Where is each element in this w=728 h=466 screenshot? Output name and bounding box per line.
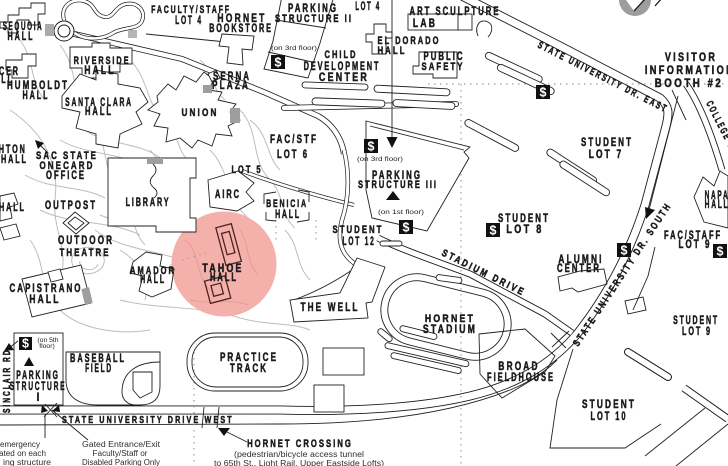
svg-text:LOT 4: LOT 4: [355, 0, 381, 12]
svg-text:BOOTH #2: BOOTH #2: [655, 77, 723, 90]
svg-text:(pedestrian/bicycle access tun: (pedestrian/bicycle access tunnel: [234, 450, 364, 459]
svg-text:AIRC: AIRC: [215, 188, 241, 201]
svg-text:$: $: [403, 221, 410, 235]
svg-text:FIELDHOUSE: FIELDHOUSE: [487, 372, 555, 385]
svg-text:STRUCTURE II: STRUCTURE II: [275, 13, 353, 26]
svg-text:HALL: HALL: [377, 45, 406, 58]
svg-text:STUDENT: STUDENT: [581, 137, 633, 150]
svg-text:$: $: [717, 245, 724, 259]
svg-text:LOT 5: LOT 5: [232, 164, 263, 177]
svg-text:LOT 12: LOT 12: [342, 234, 375, 247]
svg-text:HORNET CROSSING: HORNET CROSSING: [247, 438, 353, 451]
svg-text:$: $: [368, 140, 375, 154]
svg-text:$: $: [540, 86, 547, 100]
svg-text:TRACK: TRACK: [230, 363, 268, 376]
svg-text:INFORMATION: INFORMATION: [645, 65, 728, 77]
svg-text:STADIUM: STADIUM: [423, 324, 477, 336]
svg-text:OUTPOST: OUTPOST: [45, 200, 97, 213]
svg-text:LOT 10: LOT 10: [591, 411, 628, 424]
svg-text:ART SCULPTURE: ART SCULPTURE: [410, 6, 501, 19]
svg-text:ated on each: ated on each: [0, 449, 46, 458]
svg-text:FAC/STF: FAC/STF: [270, 134, 318, 147]
svg-text:LOT 9: LOT 9: [682, 325, 712, 338]
svg-text:Faculty/Staff or: Faculty/Staff or: [93, 449, 148, 458]
svg-text:Gated Entrance/Exit: Gated Entrance/Exit: [82, 440, 161, 449]
svg-text:HALL: HALL: [140, 273, 166, 286]
svg-text:(on 3rd floor): (on 3rd floor): [271, 45, 317, 52]
svg-text:$: $: [490, 224, 497, 238]
svg-text:LOT 9: LOT 9: [678, 239, 711, 252]
svg-text:(on 3rd floor): (on 3rd floor): [357, 156, 403, 163]
svg-text:STRUCTURE III: STRUCTURE III: [358, 179, 438, 192]
svg-text:HALL: HALL: [275, 208, 301, 221]
svg-text:LOT 8: LOT 8: [506, 224, 543, 236]
svg-text:LIBRARY: LIBRARY: [126, 196, 171, 209]
svg-text:HALL: HALL: [705, 197, 728, 210]
svg-text:VISITOR: VISITOR: [665, 52, 717, 64]
svg-text:to 65th St., Light Rail, Upper: to 65th St., Light Rail, Upper Eastside …: [214, 459, 384, 466]
svg-text:ing structure: ing structure: [3, 458, 52, 466]
svg-text:$: $: [621, 244, 628, 258]
svg-text:LOT 6: LOT 6: [277, 149, 309, 162]
svg-text:STRUCTURE: STRUCTURE: [10, 379, 67, 392]
svg-text:I: I: [36, 392, 39, 404]
svg-text:THEATRE: THEATRE: [59, 247, 110, 260]
svg-text:HALL: HALL: [85, 106, 113, 119]
svg-text:SAFETY: SAFETY: [422, 61, 465, 74]
svg-text:HALL: HALL: [23, 89, 50, 102]
svg-text:LOT 7: LOT 7: [589, 149, 624, 162]
svg-text:CENTER: CENTER: [557, 263, 601, 276]
svg-text:(on 1st floor): (on 1st floor): [378, 209, 424, 216]
svg-text:floor): floor): [39, 343, 55, 350]
svg-text:OUTDOOR: OUTDOOR: [58, 235, 114, 248]
svg-text:$: $: [22, 337, 29, 351]
svg-text:Disabled Parking Only: Disabled Parking Only: [82, 458, 160, 466]
svg-text:HALL: HALL: [1, 153, 28, 166]
svg-text:HALL: HALL: [0, 201, 26, 214]
svg-text:OFFICE: OFFICE: [46, 170, 86, 183]
svg-text:LOT 4: LOT 4: [175, 13, 203, 26]
svg-text:HALL: HALL: [210, 272, 238, 285]
svg-text:FIELD: FIELD: [85, 362, 113, 374]
svg-text:THE WELL: THE WELL: [300, 302, 359, 315]
svg-text:emergency: emergency: [0, 440, 40, 449]
svg-text:CENTER: CENTER: [319, 72, 369, 84]
svg-text:BOOKSTORE: BOOKSTORE: [209, 22, 273, 35]
svg-text:STATE UNIVERSITY DRIVE WEST: STATE UNIVERSITY DRIVE WEST: [62, 414, 234, 425]
svg-text:HALL: HALL: [0, 73, 14, 86]
svg-text:HALL: HALL: [29, 294, 60, 307]
svg-text:LAB: LAB: [413, 18, 437, 30]
svg-text:PLAZA: PLAZA: [212, 80, 250, 93]
svg-text:HALL: HALL: [84, 65, 115, 78]
svg-text:HALL: HALL: [8, 30, 35, 43]
svg-text:UNION: UNION: [181, 107, 218, 120]
svg-text:$: $: [275, 56, 282, 70]
